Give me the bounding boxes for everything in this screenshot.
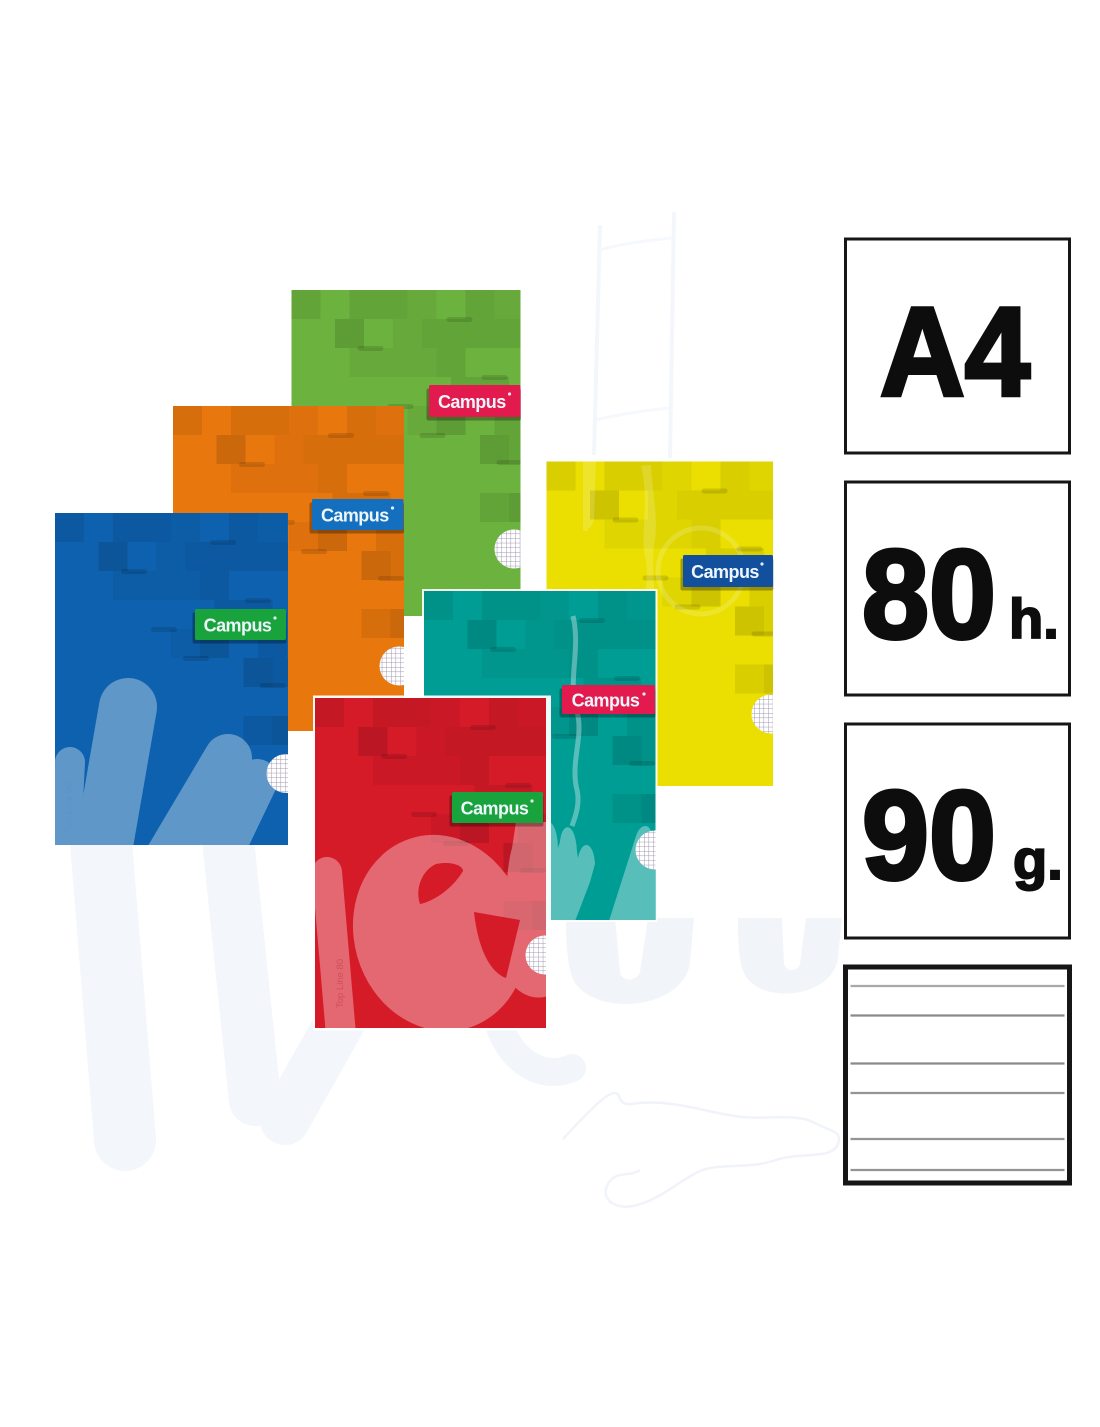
svg-text:Campus: Campus bbox=[461, 798, 529, 818]
svg-text:Top Line 90: Top Line 90 bbox=[64, 783, 75, 832]
svg-text:Campus: Campus bbox=[204, 615, 272, 635]
svg-text:80: 80 bbox=[862, 524, 996, 665]
svg-text:h.: h. bbox=[1009, 587, 1059, 650]
svg-text:Campus: Campus bbox=[691, 562, 759, 582]
svg-text:Campus: Campus bbox=[572, 690, 640, 710]
svg-text:Campus: Campus bbox=[321, 505, 389, 525]
svg-text:g.: g. bbox=[1013, 828, 1063, 891]
svg-text:A4: A4 bbox=[880, 281, 1030, 422]
svg-text:Top Line 80: Top Line 80 bbox=[335, 959, 346, 1008]
svg-text:Campus: Campus bbox=[438, 392, 506, 412]
svg-text:90: 90 bbox=[862, 765, 996, 906]
